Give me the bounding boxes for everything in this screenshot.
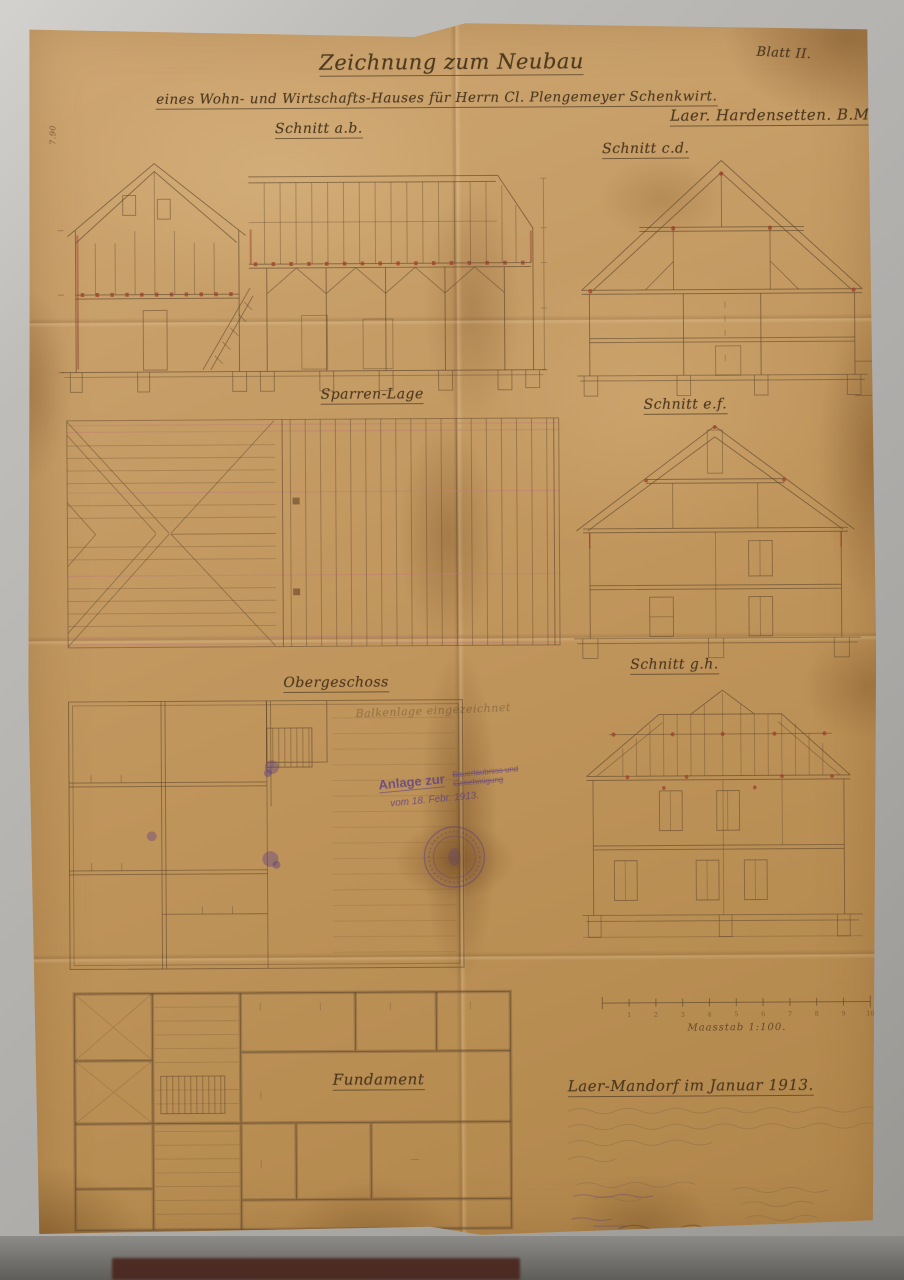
scale-tick: 1 [627,1011,631,1019]
scale-bar: 1 2 3 4 5 6 7 8 9 10 Maasstab 1:100. [594,991,879,1034]
scale-tick: 3 [681,1011,685,1019]
table-edge [112,1258,520,1280]
scale-tick: 2 [654,1011,658,1019]
place-date-line: Laer-Mandorf im Januar 1913. [568,1076,814,1098]
drawing-sheet: Blatt II. Zeichnung zum Neubau eines Woh… [24,13,879,1242]
scale-tick: 6 [761,1010,765,1018]
sheet-number: Blatt II. [756,45,812,63]
pencil-notes [563,1099,894,1235]
scale-tick: 7 [788,1010,792,1018]
sparren-lage-drawing [59,403,569,662]
location-line: Laer. Hardensetten. B.M. [670,105,875,126]
schnitt-ef-drawing [559,409,873,671]
scale-tick: 10 [866,1009,874,1017]
scale-tick: 8 [815,1010,819,1018]
fundament-plan [60,972,532,1251]
scale-tick: 5 [734,1010,738,1018]
photo-backdrop: Blatt II. Zeichnung zum Neubau eines Woh… [0,0,904,1280]
scale-tick: 9 [841,1010,845,1018]
scale-label: Maasstab 1:100. [594,1021,879,1034]
drawing-title: Zeichnung zum Neubau [319,49,584,77]
scale-tick: 4 [707,1010,711,1018]
schnitt-cd-drawing [571,147,873,401]
obergeschoss-plan [60,688,474,979]
schnitt-ab-drawing [55,133,552,404]
official-seal [419,822,489,892]
schnitt-gh-drawing [572,675,874,965]
